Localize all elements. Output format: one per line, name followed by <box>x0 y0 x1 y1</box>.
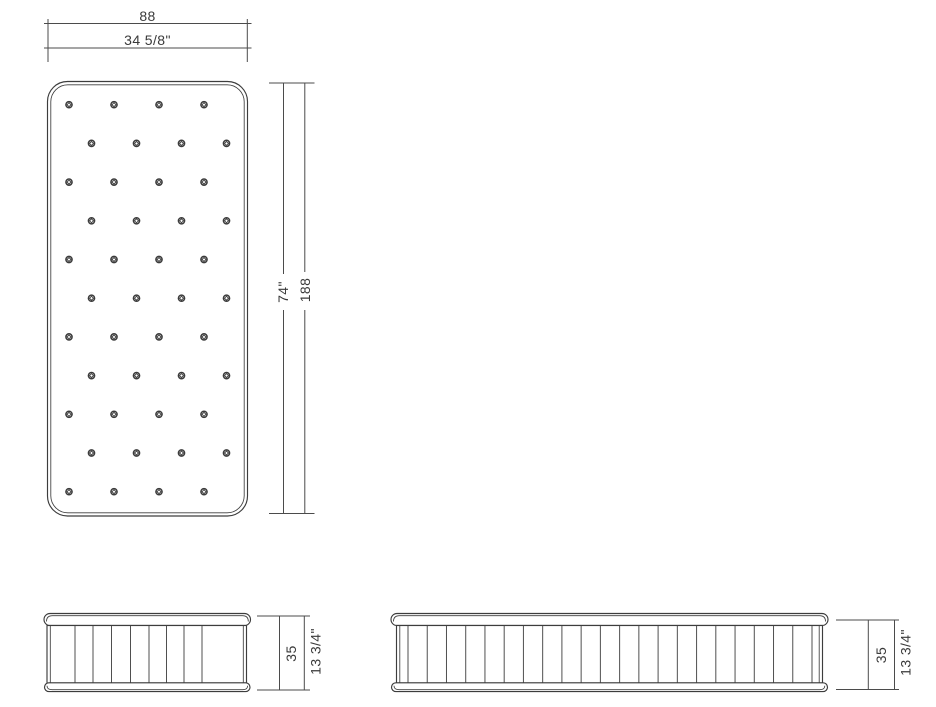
drawing-canvas: 88 34 5/8" 74" 188 35 13 3/4" <box>0 0 936 707</box>
tuft-button-icon <box>133 373 139 379</box>
mattress-side-view <box>391 614 828 692</box>
tuft-button-icon <box>223 373 229 379</box>
height-in-label: 13 3/4" <box>308 628 324 675</box>
tuft-button-icon <box>201 489 207 495</box>
side-panel <box>397 626 823 684</box>
tuft-button-icon <box>88 373 94 379</box>
tuft-button-icon <box>88 295 94 301</box>
tuft-button-icon <box>66 411 72 417</box>
side-panel <box>47 626 247 684</box>
tuft-button-icon <box>66 102 72 108</box>
tuft-button-icon <box>201 334 207 340</box>
tuft-button-icon <box>156 489 162 495</box>
tuft-button-icon <box>111 334 117 340</box>
tuft-button-icon <box>201 179 207 185</box>
tuft-button-icon <box>223 140 229 146</box>
tuft-button-icon <box>223 295 229 301</box>
tuft-button-icon <box>178 140 184 146</box>
tuft-button-icon <box>133 295 139 301</box>
width-in-label: 34 5/8" <box>124 32 171 48</box>
mattress-outer-edge <box>48 82 248 517</box>
bottom-border-band <box>45 683 251 692</box>
tuft-button-icon <box>133 450 139 456</box>
mattress-top-view <box>48 82 248 517</box>
tuft-button-icon <box>88 218 94 224</box>
height-cm-label: 35 <box>283 645 299 661</box>
tuft-button-icon <box>133 218 139 224</box>
width-cm-label: 88 <box>139 8 155 24</box>
length-cm-label: 188 <box>297 278 313 303</box>
tuft-button-icon <box>178 373 184 379</box>
tuft-button-icon <box>111 179 117 185</box>
tuft-button-icon <box>178 218 184 224</box>
tuft-button-icon <box>156 256 162 262</box>
height-cm-label: 35 <box>873 647 889 663</box>
tuft-button-icon <box>156 411 162 417</box>
tuft-button-icon <box>178 450 184 456</box>
tuft-button-icon <box>111 102 117 108</box>
tuft-button-icon <box>201 411 207 417</box>
bottom-border-band <box>392 683 828 692</box>
tuft-button-icon <box>66 334 72 340</box>
tuft-button-icon <box>66 489 72 495</box>
tuft-button-icon <box>156 179 162 185</box>
tuft-button-icon <box>223 218 229 224</box>
length-dimension: 74" 188 <box>269 83 315 514</box>
front-height-dimension: 35 13 3/4" <box>257 616 324 690</box>
side-height-dimension: 35 13 3/4" <box>836 620 914 690</box>
tuft-button-icon <box>156 102 162 108</box>
height-in-label: 13 3/4" <box>898 629 914 676</box>
width-dimension: 88 34 5/8" <box>44 8 252 62</box>
tuft-button-icon <box>156 334 162 340</box>
tuft-button-icon <box>111 489 117 495</box>
mattress-front-view <box>44 614 251 692</box>
tuft-button-icon <box>178 295 184 301</box>
tuft-button-icon <box>88 450 94 456</box>
tuft-button-icon <box>201 256 207 262</box>
length-in-label: 74" <box>275 281 291 303</box>
tuft-button-icon <box>111 411 117 417</box>
mattress-technical-drawing: 88 34 5/8" 74" 188 35 13 3/4" <box>0 0 936 707</box>
tuft-button-icon <box>66 256 72 262</box>
tuft-button-icon <box>88 140 94 146</box>
tuft-button-icon <box>201 102 207 108</box>
tuft-button-icon <box>111 256 117 262</box>
tuft-button-icon <box>223 450 229 456</box>
tuft-button-icon <box>66 179 72 185</box>
tuft-button-icon <box>133 140 139 146</box>
